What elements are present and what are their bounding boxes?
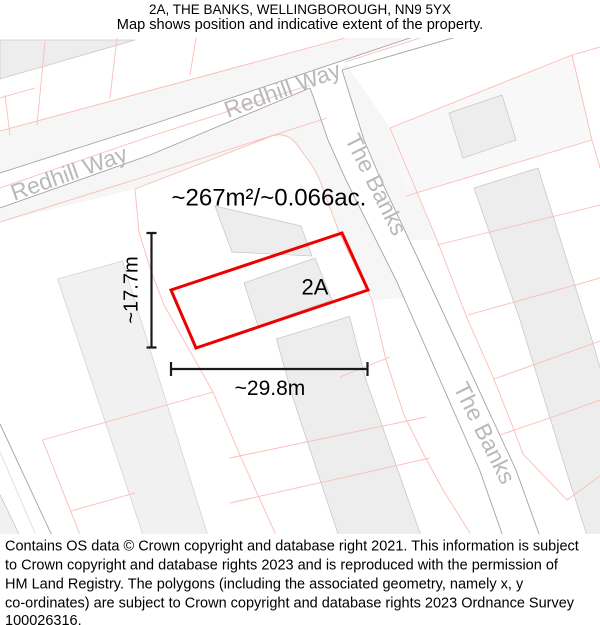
svg-text:2A: 2A xyxy=(302,275,329,300)
svg-text:~267m²/~0.066ac.: ~267m²/~0.066ac. xyxy=(172,185,367,212)
svg-text:100026316.: 100026316. xyxy=(5,613,82,625)
svg-text:to Crown copyright and databas: to Crown copyright and database rights 2… xyxy=(5,558,559,574)
svg-text:HM Land Registry. The polygons: HM Land Registry. The polygons (includin… xyxy=(5,577,524,593)
svg-text:Map shows position and indicat: Map shows position and indicative extent… xyxy=(117,17,483,33)
svg-text:~29.8m: ~29.8m xyxy=(235,377,306,400)
svg-text:~17.7m: ~17.7m xyxy=(121,256,143,323)
svg-text:2A, THE BANKS, WELLINGBOROUGH,: 2A, THE BANKS, WELLINGBOROUGH, NN9 5YX xyxy=(149,2,451,17)
svg-text:co-ordinates) are subject to C: co-ordinates) are subject to Crown copyr… xyxy=(5,596,575,612)
svg-text:Contains OS data © Crown copyr: Contains OS data © Crown copyright and d… xyxy=(5,539,579,555)
